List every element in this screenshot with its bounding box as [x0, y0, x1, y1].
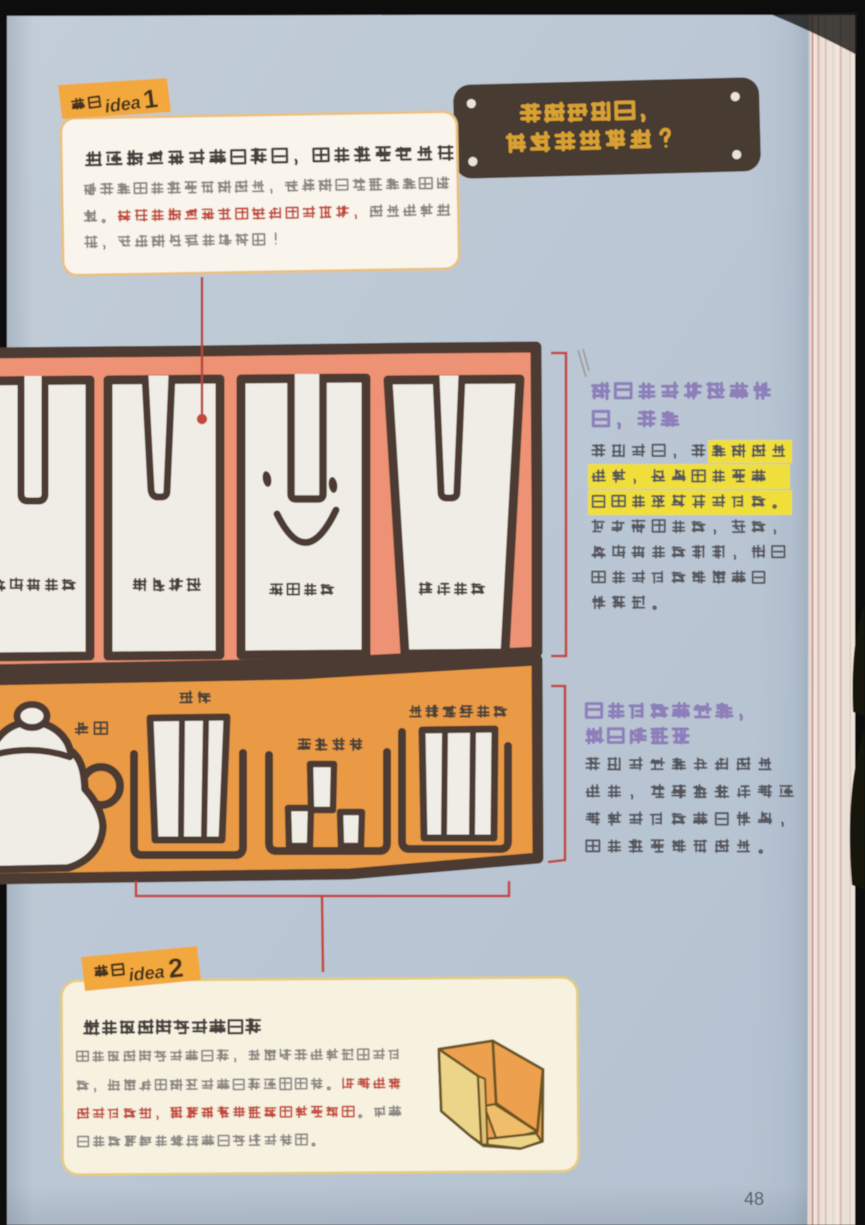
svg-text:48: 48 [744, 1189, 764, 1209]
svg-text:2: 2 [167, 953, 185, 984]
svg-text:idea: idea [128, 962, 166, 986]
